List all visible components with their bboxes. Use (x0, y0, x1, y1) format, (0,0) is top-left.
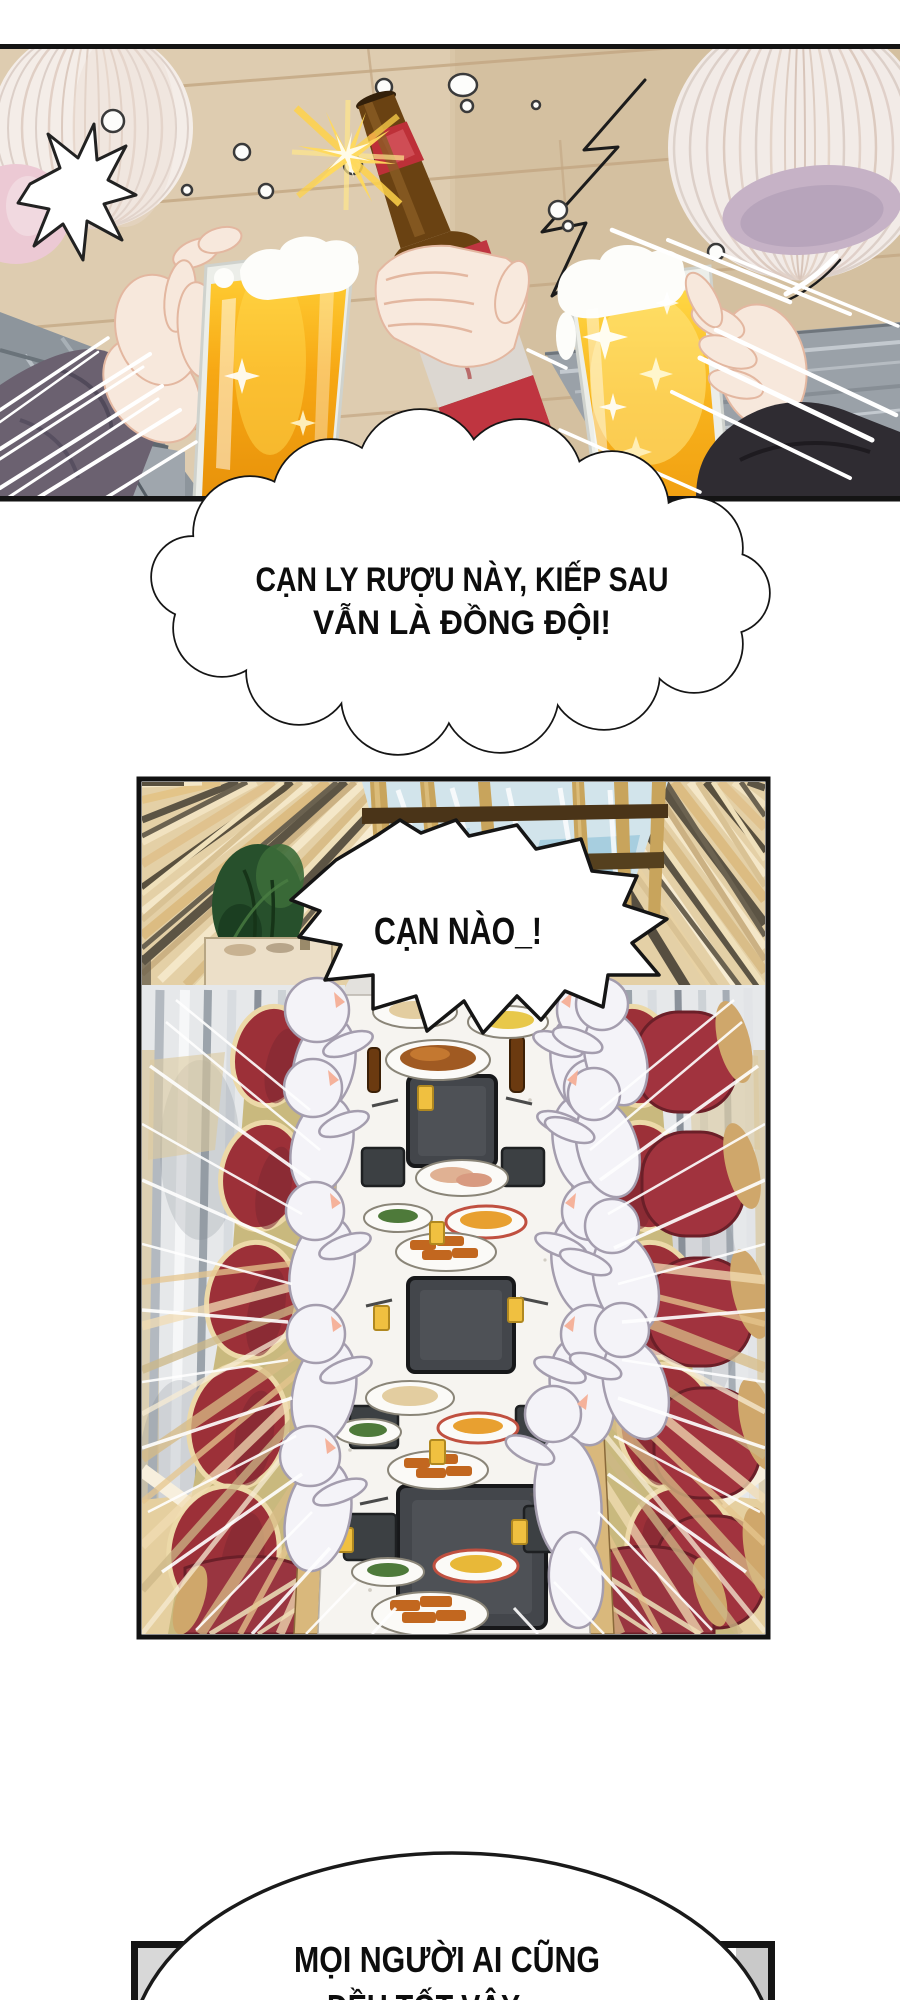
svg-text:CẠN LY RƯỢU NÀY, KIẾP SAU: CẠN LY RƯỢU NÀY, KIẾP SAU (256, 561, 669, 599)
svg-text:VẪN LÀ ĐỒNG ĐỘI!: VẪN LÀ ĐỒNG ĐỘI! (313, 603, 611, 642)
svg-text:MỌI NGƯỜI AI CŨNG: MỌI NGƯỜI AI CŨNG (294, 1938, 600, 1980)
svg-text:CẠN NÀO_!: CẠN NÀO_! (374, 909, 542, 953)
svg-text:ĐỀU TỐT VẬY...: ĐỀU TỐT VẬY... (327, 1986, 541, 2000)
